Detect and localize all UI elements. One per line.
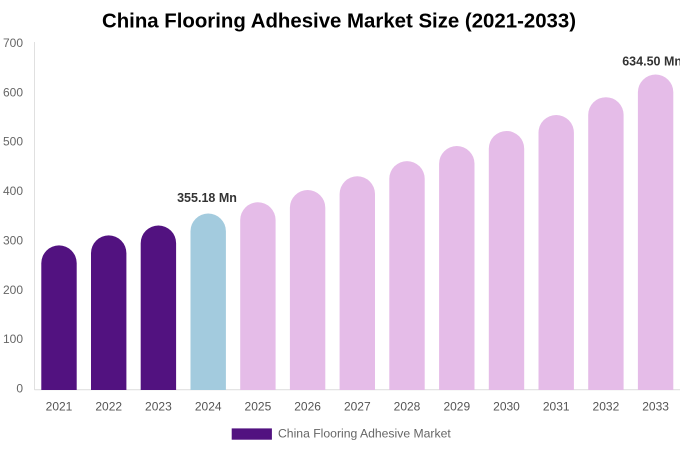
- svg-text:2028: 2028: [394, 400, 421, 414]
- svg-text:2032: 2032: [593, 400, 620, 414]
- svg-text:China Flooring Adhesive Market: China Flooring Adhesive Market Size (202…: [102, 10, 576, 32]
- svg-text:0: 0: [16, 382, 23, 396]
- svg-text:2025: 2025: [245, 400, 272, 414]
- svg-text:2021: 2021: [46, 400, 73, 414]
- svg-text:500: 500: [3, 135, 23, 149]
- svg-text:2027: 2027: [344, 400, 371, 414]
- svg-text:China Flooring Adhesive Market: China Flooring Adhesive Market: [278, 426, 451, 440]
- svg-text:300: 300: [3, 233, 23, 247]
- svg-text:355.18 Mn: 355.18 Mn: [177, 191, 237, 205]
- svg-text:700: 700: [3, 36, 23, 50]
- svg-text:600: 600: [3, 85, 23, 99]
- svg-text:2033: 2033: [642, 400, 669, 414]
- svg-text:2026: 2026: [294, 400, 321, 414]
- svg-text:100: 100: [3, 332, 23, 346]
- svg-text:2022: 2022: [95, 400, 122, 414]
- svg-text:2030: 2030: [493, 400, 520, 414]
- svg-text:2031: 2031: [543, 400, 570, 414]
- svg-text:400: 400: [3, 184, 23, 198]
- svg-text:634.50 Mn: 634.50 Mn: [622, 54, 680, 68]
- svg-text:2023: 2023: [145, 400, 172, 414]
- svg-text:2029: 2029: [443, 400, 470, 414]
- svg-text:2024: 2024: [195, 400, 222, 414]
- svg-text:200: 200: [3, 283, 23, 297]
